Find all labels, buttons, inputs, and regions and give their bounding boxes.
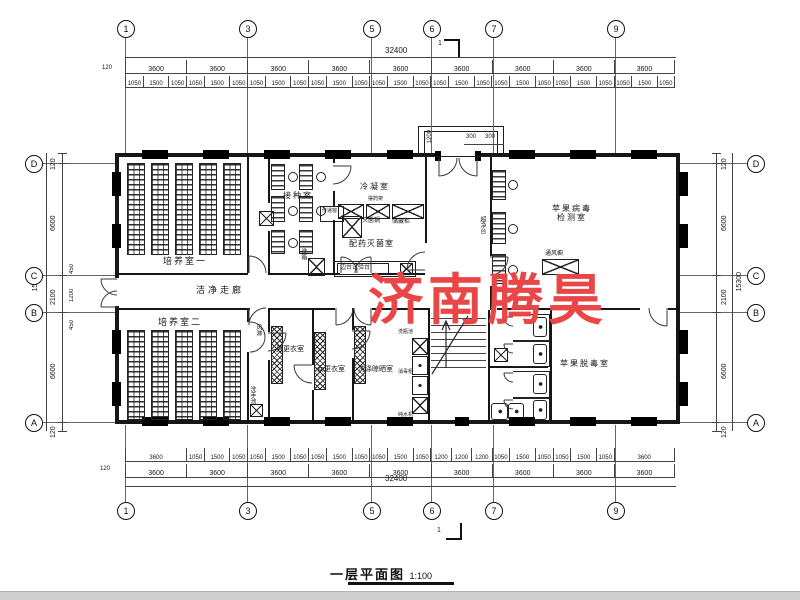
room-label-women-changing: 女更衣室 [317,366,345,374]
grid-bubble-left: C [25,267,43,285]
dim-left-extra-value: 1200 [69,282,78,302]
grid-bubble-top: 5 [363,20,381,38]
room-label-corridor: 洁净走廊 [196,285,244,295]
room-label-men-changing: 男更衣室 [276,346,304,354]
dim-left-extra-value: 450 [69,310,78,330]
room-label-culture2: 培养室二 [158,317,202,327]
drawing-scale: 1:100 [409,571,432,581]
wash-box-label: 洗箱 [299,248,306,260]
dim-right-value: 6600 [721,355,731,379]
floor-plan-sheet: 济南腾昊 1200 300 300 培养室一 接种室 冷凝室 配药灭菌室 苹果病… [0,0,800,600]
dim-right-value: 120 [721,146,731,170]
dim-bottom-overall: 32400 [385,474,407,483]
room-label-virus-test: 苹果病毒 检测室 [540,204,604,222]
grid-bubble-left: D [25,155,43,173]
section-mark-bottom-label: 1 [437,527,441,535]
room-label-virus-test-line2: 检测室 [540,213,604,222]
grid-bubble-bottom: 7 [485,502,503,520]
room-label-culture1: 培养室一 [163,256,207,266]
hand-sink-label: 洗手池 [248,386,255,404]
grid-bubble-right: C [747,267,765,285]
storage-cabinet-label: 储藏柜 [392,219,410,226]
pure-water-label: 纯水机 [398,413,413,419]
drawing-title: 一层平面图 [330,567,405,582]
dim-entrance-right: 300 [485,134,495,141]
grid-bubble-right: B [747,304,765,322]
dim-left-value: 2100 [50,281,60,305]
dim-entrance-depth: 1200 [427,130,434,143]
watermark: 济南腾昊 [368,255,608,335]
grid-bubble-left: B [25,304,43,322]
grid-bubble-bottom: 1 [117,502,135,520]
grid-bubble-top: 3 [239,20,257,38]
grid-bubble-bottom: 3 [239,502,257,520]
dim-left-value: 120 [50,414,60,438]
grid-bubble-top: 9 [607,20,625,38]
grid-bubble-bottom: 9 [607,502,625,520]
room-label-virus-test-line1: 苹果病毒 [540,204,604,213]
dim-right-overall: 15300 [736,272,744,291]
room-label-detox: 苹果脱毒室 [560,359,610,368]
dim-right-value: 6600 [721,207,731,231]
grid-bubble-top: 7 [485,20,503,38]
dim-left-extra-value: 450 [69,254,78,274]
side-bench-label: 边台试验台 [340,265,370,272]
room-label-washing: 洗涤晾晒室 [358,366,393,374]
air-shower-label: 风淋 [254,324,261,336]
dim-right-value: 120 [721,414,731,438]
title-block: 一层平面图 1:100 [330,564,432,584]
pass-window-label: 传递窗 [322,209,337,215]
grid-bubble-left: A [25,414,43,432]
sterilizer-label: 灭菌锅 [362,218,380,225]
grid-bubble-right: A [747,414,765,432]
grid-bubble-top: 6 [423,20,441,38]
grid-bubble-top: 1 [117,20,135,38]
dim-top-edge: 120 [102,65,112,72]
dim-right-value: 2100 [721,281,731,305]
room-label-inoculation: 接种室 [283,191,313,200]
dim-left-value: 6600 [50,207,60,231]
room-label-condensation: 冷凝室 [360,182,390,191]
room-label-dispensing: 配药灭菌室 [349,239,394,248]
grid-bubble-bottom: 5 [363,502,381,520]
disinfect-cabinet-label: 消毒柜 [398,370,413,376]
grid-bubble-bottom: 6 [423,502,441,520]
med-rack-label: 摆药架 [368,197,383,203]
dim-left-value: 6600 [50,355,60,379]
dim-bottom-edge: 120 [100,466,110,473]
dim-entrance-left: 300 [466,134,476,141]
dim-top-overall: 32400 [385,46,407,55]
section-mark-top-label: 1 [438,40,442,48]
clean-bench-label: 超净台 [478,216,485,234]
grid-bubble-right: D [747,155,765,173]
dim-left-value: 120 [50,146,60,170]
